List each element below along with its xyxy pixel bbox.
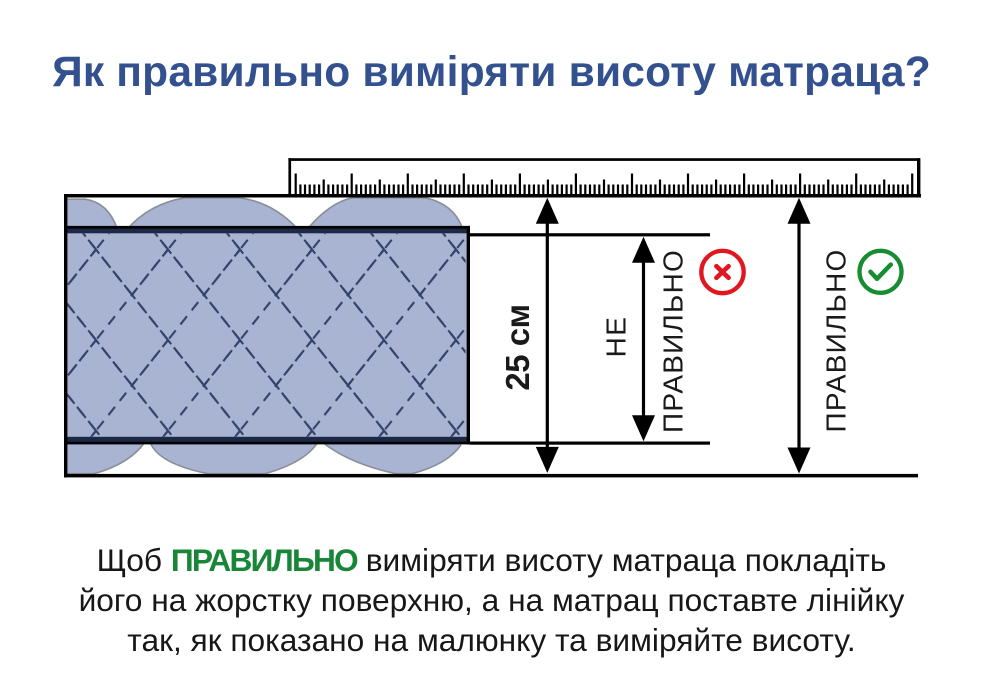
svg-text:ПРАВИЛЬНО: ПРАВИЛЬНО xyxy=(821,249,852,433)
svg-text:25 см: 25 см xyxy=(499,304,536,390)
svg-text:НЕ: НЕ xyxy=(601,316,632,358)
svg-text:ПРАВИЛЬНО: ПРАВИЛЬНО xyxy=(658,249,689,433)
